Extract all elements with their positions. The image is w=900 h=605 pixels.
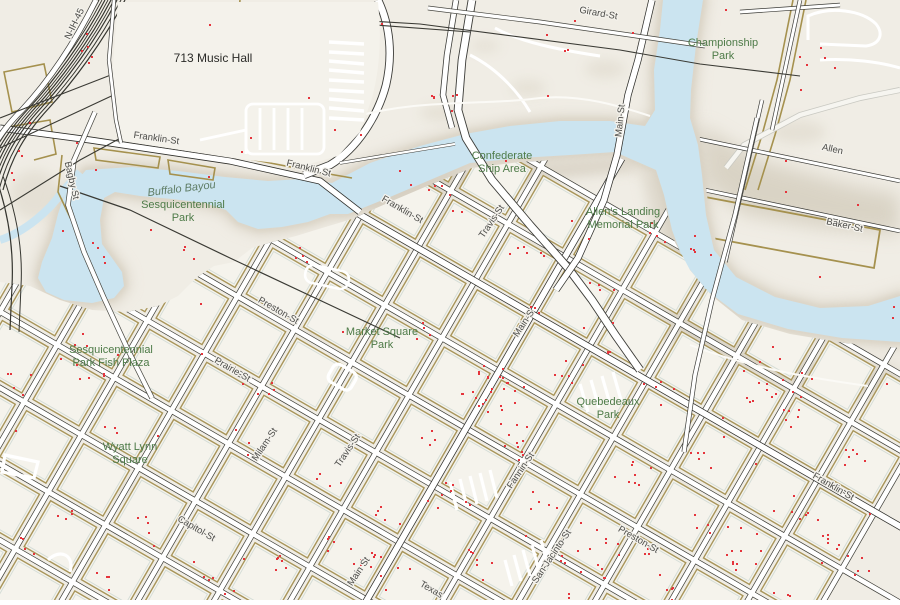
svg-text:Allen's LandingMemorial Park: Allen's LandingMemorial Park bbox=[586, 206, 660, 231]
svg-text:ConfederateShip Area: ConfederateShip Area bbox=[472, 150, 533, 175]
svg-text:713 Music Hall: 713 Music Hall bbox=[174, 51, 253, 65]
svg-text:SesquicentennialPark Fish Plaz: SesquicentennialPark Fish Plaza bbox=[69, 344, 153, 369]
